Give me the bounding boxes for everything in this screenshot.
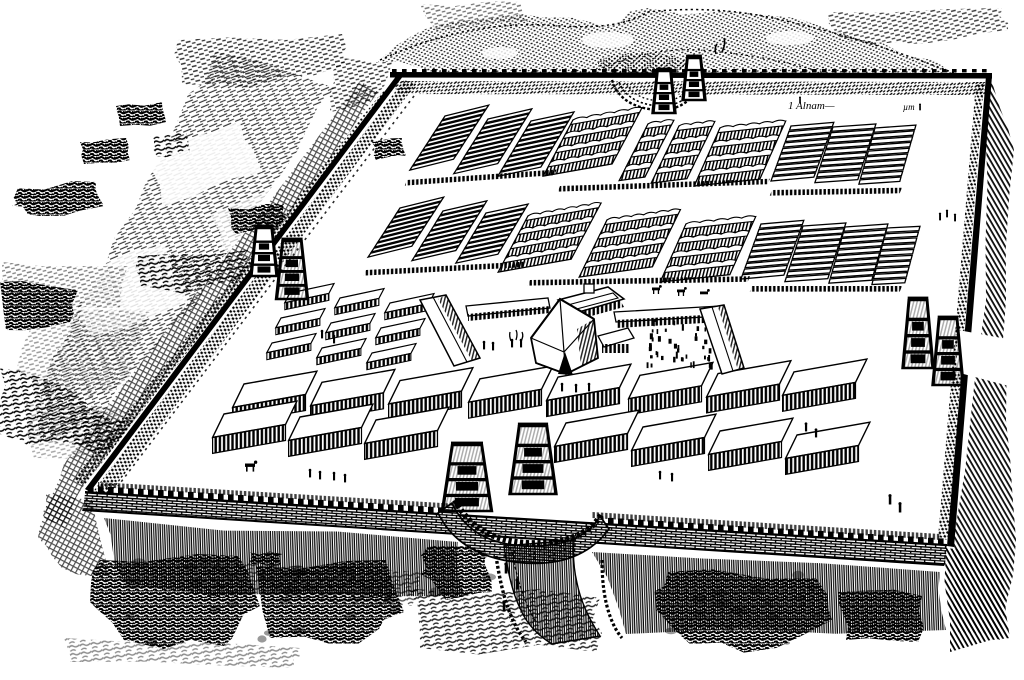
- svg-text:1 Alnam—: 1 Alnam—: [788, 100, 835, 112]
- svg-text:µт: µт: [903, 102, 915, 112]
